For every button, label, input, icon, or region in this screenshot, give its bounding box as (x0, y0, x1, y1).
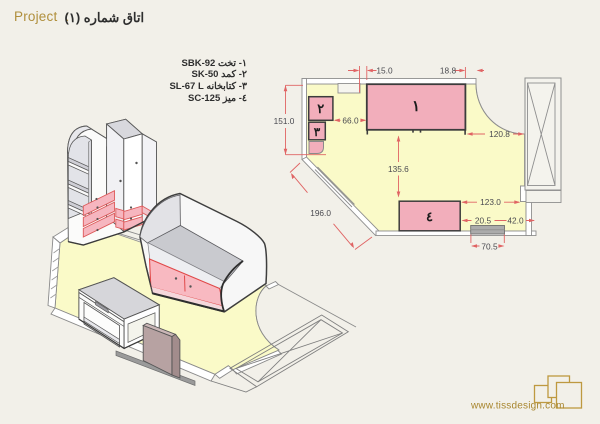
svg-text:٤: ٤ (426, 209, 433, 224)
svg-text:151.0: 151.0 (274, 116, 295, 126)
svg-text:www.tissdesign.com: www.tissdesign.com (470, 400, 565, 411)
svg-text:135.6: 135.6 (388, 164, 409, 174)
svg-text:196.0: 196.0 (310, 208, 331, 218)
svg-text:٣: ٣ (314, 125, 321, 139)
svg-text:15.0: 15.0 (376, 66, 393, 76)
svg-text:66.0: 66.0 (342, 115, 359, 125)
svg-text:42.0: 42.0 (507, 216, 524, 226)
svg-text:70.5: 70.5 (481, 241, 498, 251)
svg-text:123.0: 123.0 (480, 197, 501, 207)
svg-text:20.5: 20.5 (475, 216, 492, 226)
svg-text:٢: ٢ (317, 101, 324, 116)
svg-text:18.8: 18.8 (440, 66, 457, 76)
svg-text:١: ١ (412, 98, 420, 115)
svg-text:120.8: 120.8 (489, 129, 510, 139)
